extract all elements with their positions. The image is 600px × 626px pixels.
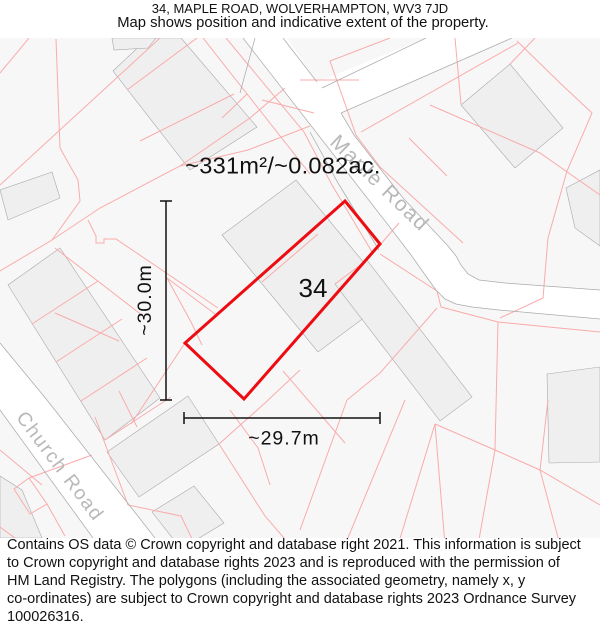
- svg-text:~29.7m: ~29.7m: [248, 428, 320, 450]
- svg-text:~331m²/~0.082ac.: ~331m²/~0.082ac.: [185, 153, 381, 179]
- svg-text:~30.0m: ~30.0m: [134, 264, 156, 336]
- svg-text:34: 34: [299, 273, 328, 303]
